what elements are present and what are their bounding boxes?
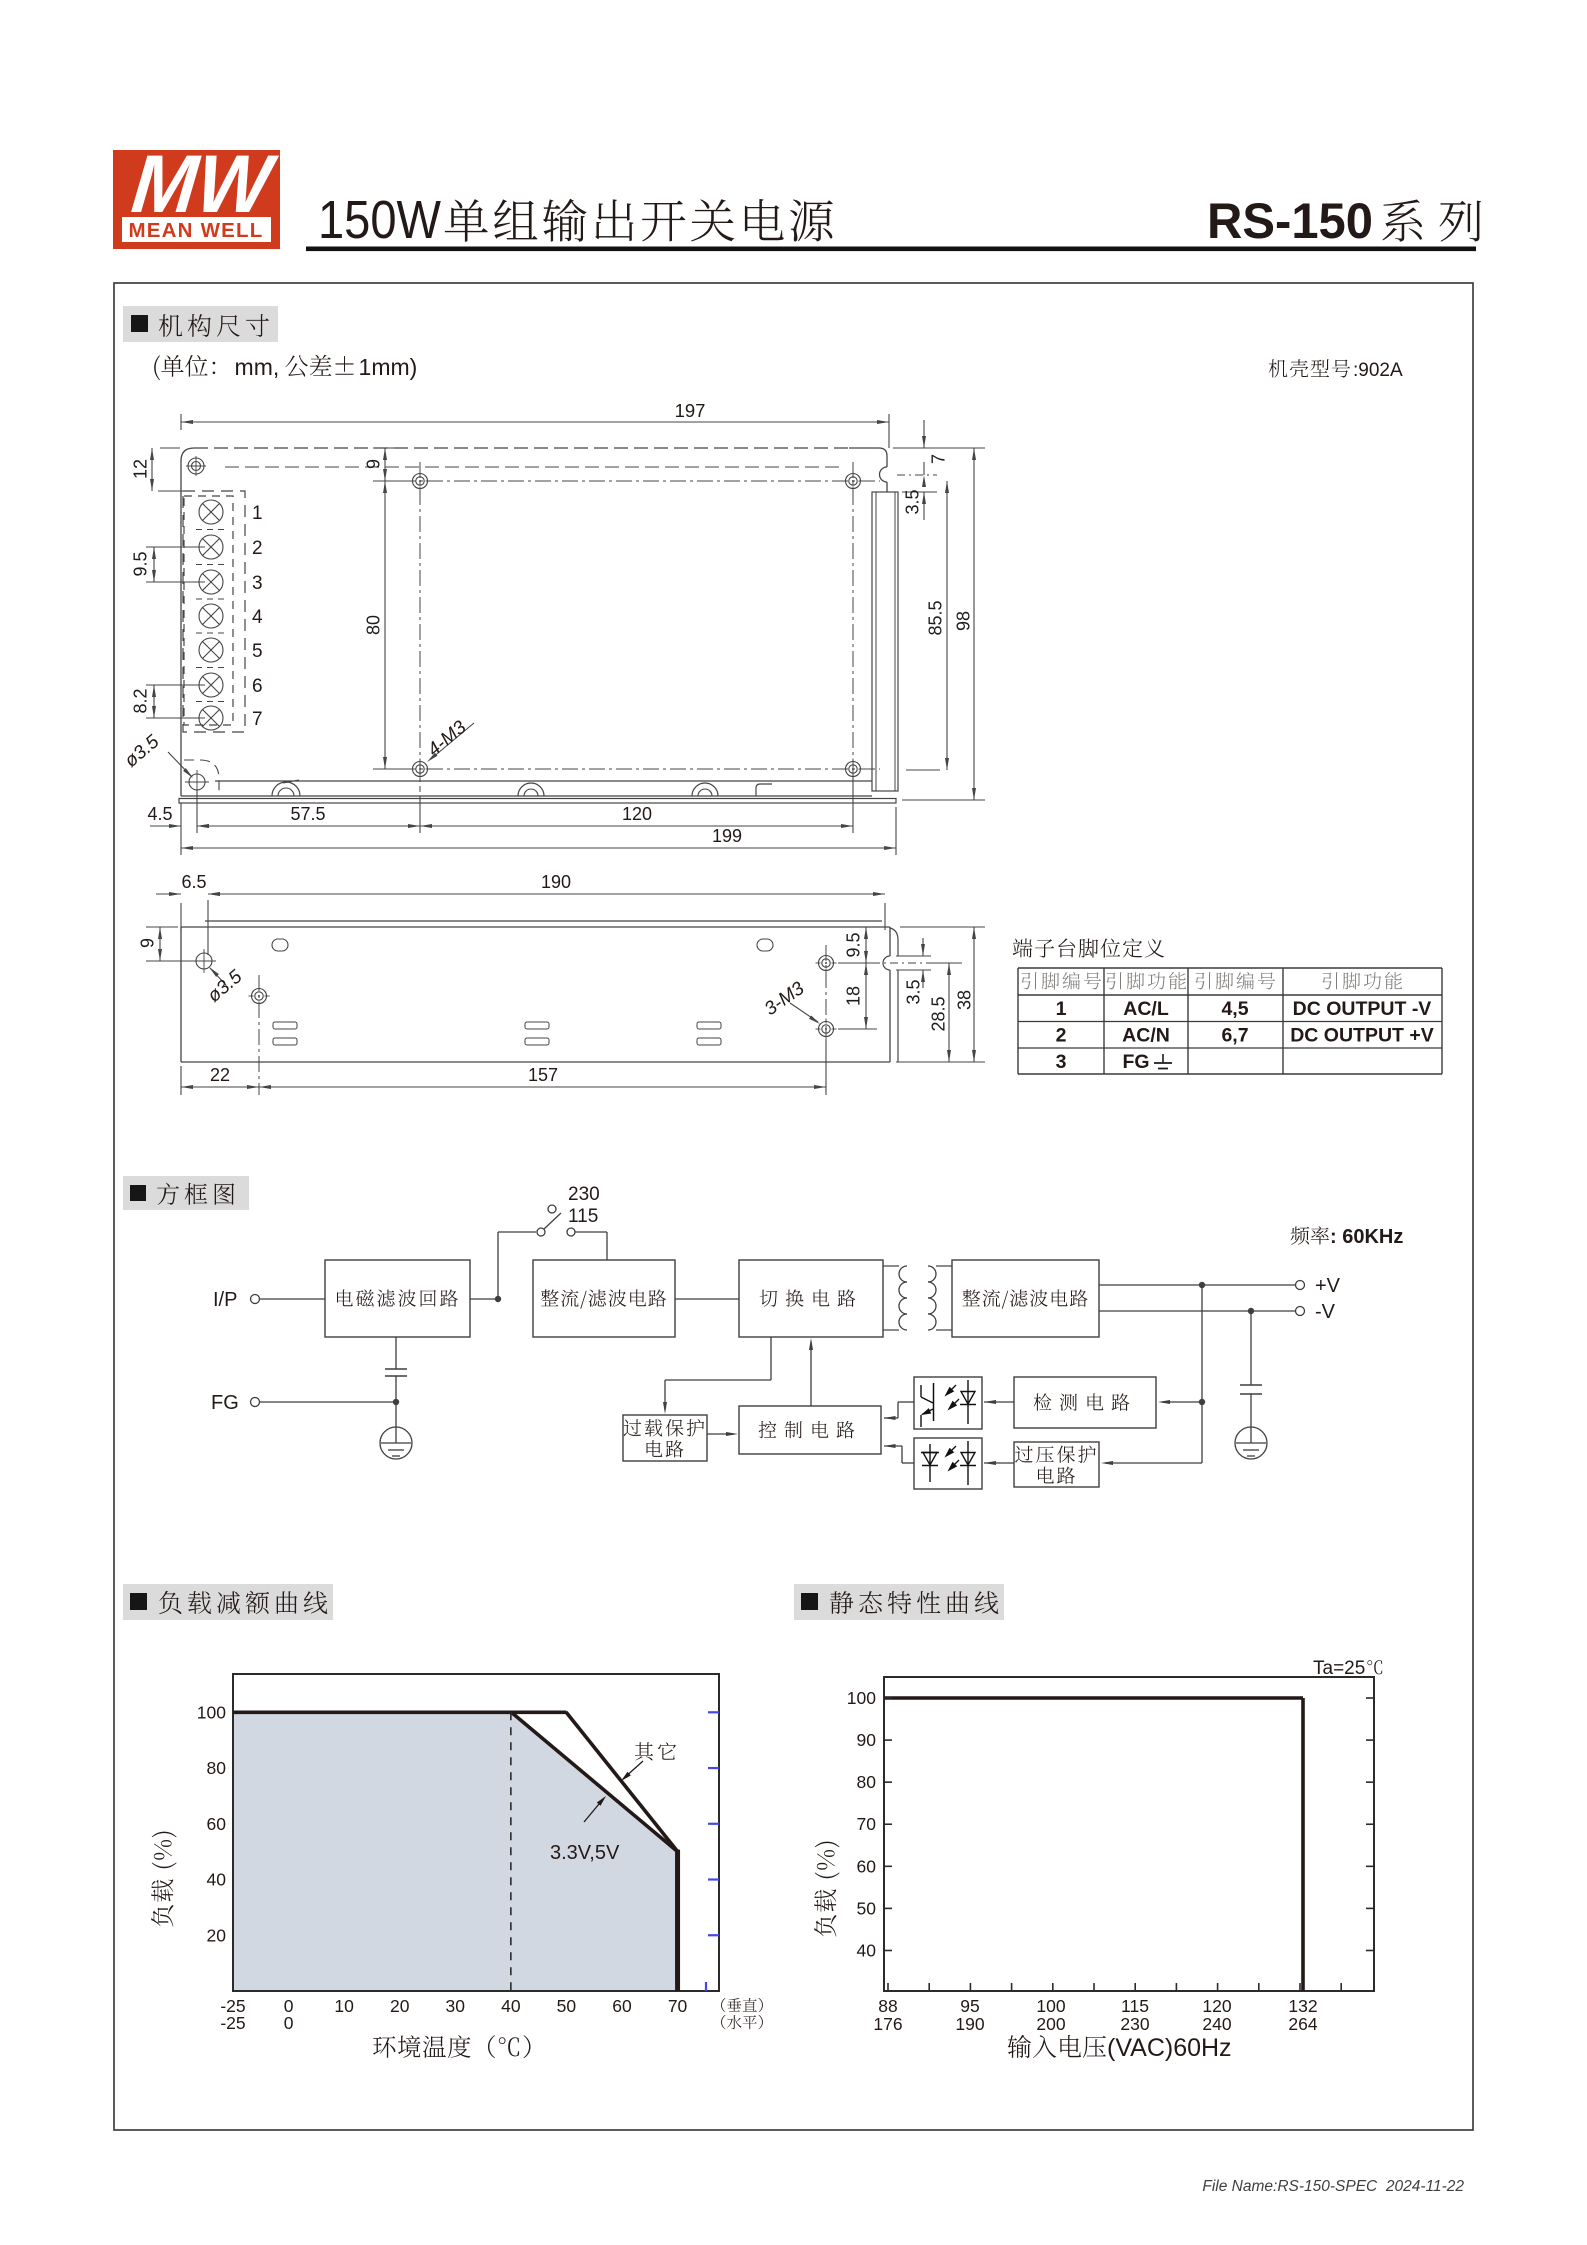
svg-text:4-M3: 4-M3 [424,717,471,761]
svg-text:-25: -25 [220,2013,245,2033]
svg-text:95: 95 [960,1996,979,2016]
svg-text:197: 197 [675,400,706,421]
svg-text::902A: :902A [1353,360,1403,381]
svg-text:3.5: 3.5 [902,489,922,514]
svg-text:98: 98 [953,611,973,631]
svg-text:30: 30 [446,1996,466,2016]
svg-text:5: 5 [252,641,263,662]
svg-text:I/P: I/P [213,1289,237,1311]
svg-text:ø3.5: ø3.5 [204,966,247,1007]
svg-text:88: 88 [878,1996,897,2016]
svg-text:9.5: 9.5 [843,932,863,957]
svg-text:(VAC)60Hz: (VAC)60Hz [1107,2034,1232,2062]
svg-text:7: 7 [252,709,263,730]
svg-text:+V: +V [1315,1275,1341,1297]
svg-text:12: 12 [130,459,150,479]
svg-text:: 60KHz: : 60KHz [1330,1226,1403,1248]
svg-text:20: 20 [207,1925,227,1945]
svg-text:4: 4 [252,607,263,628]
svg-text:85.5: 85.5 [925,600,945,635]
svg-text:190: 190 [955,2014,984,2034]
svg-text:FG: FG [1122,1051,1149,1073]
svg-text:50: 50 [557,1996,577,2016]
svg-text:264: 264 [1288,2014,1317,2034]
svg-text:6.5: 6.5 [181,872,206,892]
svg-text:80: 80 [857,1772,877,1792]
svg-text:mm,: mm, [235,354,280,380]
svg-text:40: 40 [857,1940,877,1960]
svg-text:10: 10 [334,1996,354,2016]
svg-text:115: 115 [568,1206,598,1227]
svg-text:240: 240 [1202,2014,1231,2034]
svg-text:9: 9 [363,459,383,469]
svg-text:60: 60 [612,1996,632,2016]
svg-text:2: 2 [252,538,263,559]
svg-text:3: 3 [1056,1051,1067,1073]
svg-text:60: 60 [207,1814,227,1834]
svg-text:3: 3 [252,573,263,594]
svg-text:AC/L: AC/L [1123,998,1169,1020]
svg-text:1: 1 [252,503,263,524]
svg-text:190: 190 [541,872,571,892]
svg-text:40: 40 [207,1870,227,1890]
svg-text:132: 132 [1288,1996,1317,2016]
svg-text:Ta=25: Ta=25 [1313,1658,1365,1679]
svg-text:6: 6 [252,676,263,697]
svg-text:157: 157 [528,1065,558,1085]
svg-text:FG: FG [211,1392,239,1414]
svg-text:18: 18 [843,986,863,1006]
svg-text:3-M3: 3-M3 [761,978,809,1020]
svg-text:80: 80 [207,1758,227,1778]
svg-text:150W: 150W [318,190,441,250]
svg-text:100: 100 [847,1688,876,1708]
svg-text:MW: MW [128,139,282,230]
svg-text:20: 20 [390,1996,410,2016]
svg-text:70: 70 [668,1996,688,2016]
svg-text:RS-150: RS-150 [1207,193,1373,249]
svg-text:7: 7 [928,454,948,464]
svg-text:2: 2 [1056,1025,1067,1047]
svg-text:8.2: 8.2 [130,688,150,713]
svg-text:200: 200 [1036,2014,1065,2034]
svg-text:176: 176 [873,2014,902,2034]
svg-text:100: 100 [197,1702,226,1722]
svg-text:3.5: 3.5 [903,979,923,1004]
svg-text:28.5: 28.5 [928,996,948,1031]
svg-text:File Name:RS-150-SPEC 2024-11: File Name:RS-150-SPEC 2024-11-22 [1202,2178,1464,2195]
svg-text:9: 9 [137,938,157,948]
svg-text:0: 0 [284,2013,294,2033]
svg-text:230: 230 [1120,2014,1149,2034]
svg-text:100: 100 [1036,1996,1065,2016]
svg-text:-V: -V [1315,1301,1336,1323]
svg-text:ø3.5: ø3.5 [121,731,164,772]
svg-text:115: 115 [1121,1996,1149,2016]
svg-text:60: 60 [857,1856,877,1876]
svg-text:AC/N: AC/N [1122,1025,1170,1047]
svg-text:40: 40 [501,1996,521,2016]
svg-text:4.5: 4.5 [147,804,172,824]
svg-text:6,7: 6,7 [1221,1025,1248,1047]
svg-text:70: 70 [857,1814,877,1834]
svg-text:DC OUTPUT +V: DC OUTPUT +V [1290,1025,1434,1047]
svg-text:57.5: 57.5 [290,804,325,824]
svg-text:3.3V,5V: 3.3V,5V [550,1842,620,1864]
svg-text:230: 230 [568,1184,600,1205]
svg-text:120: 120 [1202,1996,1231,2016]
svg-text:1: 1 [1056,998,1067,1020]
svg-text:MEAN WELL: MEAN WELL [129,219,264,242]
svg-text:4,5: 4,5 [1221,998,1248,1020]
svg-text:199: 199 [712,826,742,846]
svg-text:50: 50 [857,1898,877,1918]
svg-text:22: 22 [210,1065,230,1085]
svg-text:DC OUTPUT -V: DC OUTPUT -V [1293,998,1432,1020]
svg-text:120: 120 [622,804,652,824]
svg-text:9.5: 9.5 [130,551,150,576]
svg-text:1mm): 1mm) [359,354,418,380]
svg-text:80: 80 [363,615,383,635]
svg-text:90: 90 [857,1730,877,1750]
svg-text:38: 38 [954,990,974,1010]
